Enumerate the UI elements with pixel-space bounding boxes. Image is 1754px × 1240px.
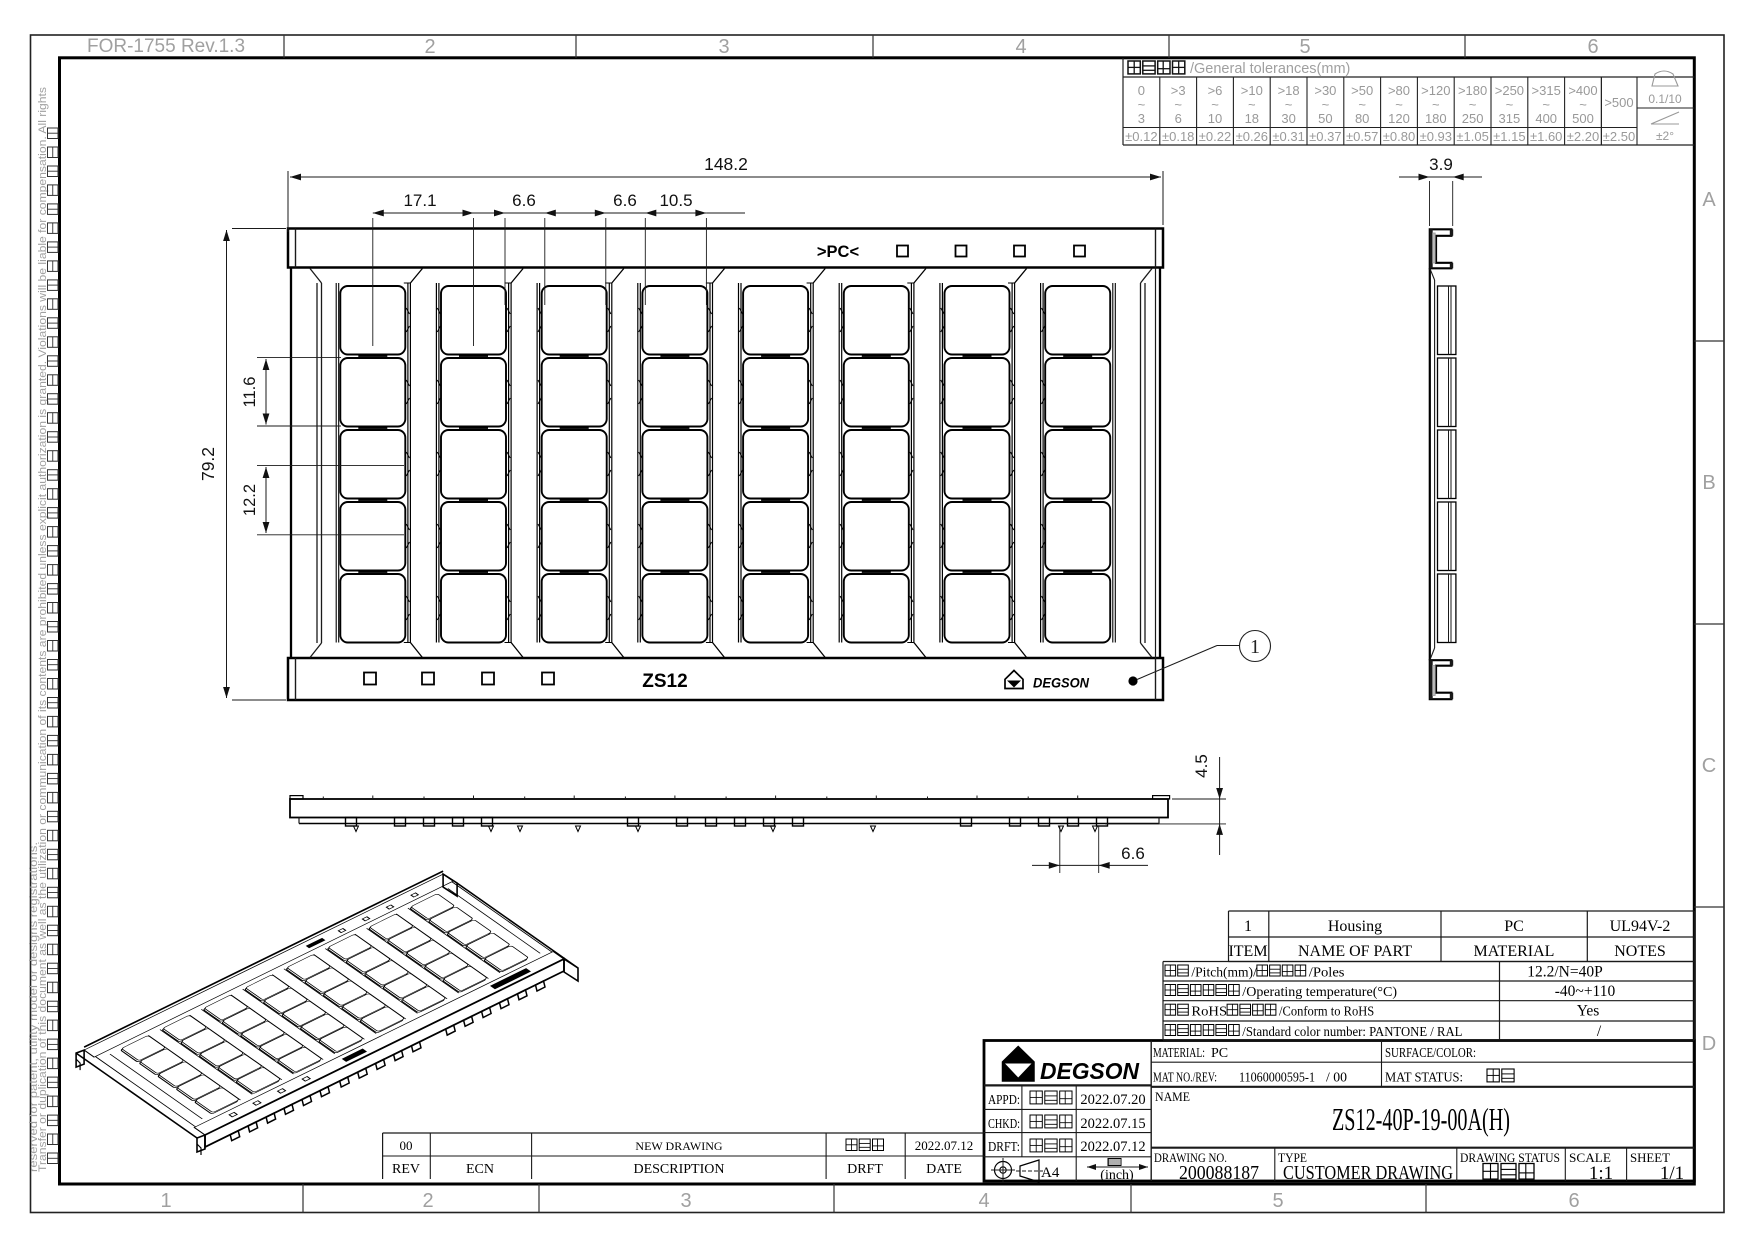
svg-text:4: 4 bbox=[978, 1190, 989, 1212]
svg-text:3: 3 bbox=[718, 36, 729, 58]
svg-text:MATERIAL: MATERIAL bbox=[1474, 943, 1555, 960]
svg-text:30: 30 bbox=[1281, 111, 1295, 126]
svg-text:200088187: 200088187 bbox=[1179, 1162, 1259, 1184]
svg-text:MAT STATUS:: MAT STATUS: bbox=[1385, 1071, 1463, 1086]
svg-text:±0.57: ±0.57 bbox=[1346, 129, 1378, 144]
svg-text:2: 2 bbox=[422, 1190, 433, 1212]
svg-text:12.2/N=40P: 12.2/N=40P bbox=[1527, 964, 1603, 981]
svg-text:MAT NO./REV:: MAT NO./REV: bbox=[1153, 1071, 1217, 1086]
svg-text:1: 1 bbox=[1250, 636, 1260, 658]
svg-text:-40~+110: -40~+110 bbox=[1555, 983, 1616, 1000]
svg-text:6: 6 bbox=[1175, 111, 1182, 126]
svg-text:~: ~ bbox=[1174, 97, 1182, 112]
svg-text:CHKD:: CHKD: bbox=[988, 1117, 1020, 1132]
svg-text:~: ~ bbox=[1579, 97, 1587, 112]
svg-text:D: D bbox=[1702, 1033, 1716, 1055]
svg-text:>3: >3 bbox=[1171, 83, 1186, 98]
svg-text:/Operating temperature(°C): /Operating temperature(°C) bbox=[1242, 985, 1397, 1000]
svg-text:NAME OF PART: NAME OF PART bbox=[1298, 943, 1412, 960]
svg-text:±0.37: ±0.37 bbox=[1309, 129, 1341, 144]
svg-text:>10: >10 bbox=[1241, 83, 1263, 98]
svg-text:~: ~ bbox=[1358, 97, 1366, 112]
svg-text:±2°: ±2° bbox=[1656, 129, 1674, 143]
svg-text:120: 120 bbox=[1388, 111, 1410, 126]
svg-text:4.5: 4.5 bbox=[1192, 754, 1211, 778]
svg-text:±1.60: ±1.60 bbox=[1530, 129, 1562, 144]
svg-text:~: ~ bbox=[1138, 97, 1146, 112]
svg-text:~: ~ bbox=[1322, 97, 1330, 112]
svg-text:~: ~ bbox=[1542, 97, 1550, 112]
svg-text:~: ~ bbox=[1285, 97, 1293, 112]
svg-text:1/1: 1/1 bbox=[1660, 1163, 1684, 1184]
svg-text:reserved for patent, utility m: reserved for patent, utility model or de… bbox=[28, 842, 40, 1172]
svg-text:MATERIAL:: MATERIAL: bbox=[1153, 1046, 1205, 1061]
svg-text:>50: >50 bbox=[1351, 83, 1373, 98]
svg-text:Housing: Housing bbox=[1328, 918, 1382, 935]
svg-text:5: 5 bbox=[1272, 1190, 1283, 1212]
svg-text:Yes: Yes bbox=[1577, 1003, 1600, 1020]
svg-text:±1.05: ±1.05 bbox=[1456, 129, 1488, 144]
svg-text:DESCRIPTION: DESCRIPTION bbox=[633, 1162, 724, 1177]
svg-text:2022.07.15: 2022.07.15 bbox=[1080, 1116, 1145, 1132]
svg-text:3: 3 bbox=[1138, 111, 1145, 126]
svg-text:/General tolerances(mm): /General tolerances(mm) bbox=[1190, 61, 1350, 77]
svg-text:>500: >500 bbox=[1604, 95, 1633, 110]
svg-text:±2.50: ±2.50 bbox=[1603, 129, 1635, 144]
svg-text:>6: >6 bbox=[1208, 83, 1223, 98]
svg-text:UL94V-2: UL94V-2 bbox=[1610, 918, 1671, 935]
svg-text:~: ~ bbox=[1211, 97, 1219, 112]
svg-text:/Poles: /Poles bbox=[1309, 966, 1345, 981]
svg-text:>18: >18 bbox=[1278, 83, 1300, 98]
svg-text:±1.15: ±1.15 bbox=[1493, 129, 1525, 144]
svg-text:PC: PC bbox=[1211, 1046, 1228, 1061]
svg-text:±0.12: ±0.12 bbox=[1125, 129, 1157, 144]
svg-text:B: B bbox=[1702, 472, 1715, 494]
svg-text:315: 315 bbox=[1499, 111, 1521, 126]
svg-text:ZS12: ZS12 bbox=[642, 671, 687, 692]
svg-text:±2.20: ±2.20 bbox=[1567, 129, 1599, 144]
svg-text:~: ~ bbox=[1248, 97, 1256, 112]
svg-text:DRFT:: DRFT: bbox=[988, 1140, 1020, 1155]
svg-text:>250: >250 bbox=[1495, 83, 1524, 98]
svg-text:2022.07.12: 2022.07.12 bbox=[1080, 1139, 1145, 1155]
svg-text:/: / bbox=[1597, 1023, 1602, 1040]
svg-text:>PC<: >PC< bbox=[817, 243, 859, 261]
svg-text:0.1/10: 0.1/10 bbox=[1648, 92, 1682, 106]
svg-text:>80: >80 bbox=[1388, 83, 1410, 98]
svg-text:A: A bbox=[1702, 189, 1716, 211]
svg-text:>30: >30 bbox=[1314, 83, 1336, 98]
svg-text:6.6: 6.6 bbox=[1121, 844, 1145, 863]
svg-text:17.1: 17.1 bbox=[403, 191, 436, 210]
svg-text:APPD:: APPD: bbox=[988, 1093, 1020, 1108]
svg-text:ECN: ECN bbox=[466, 1162, 494, 1177]
svg-text:0: 0 bbox=[1138, 83, 1145, 98]
svg-text:±0.26: ±0.26 bbox=[1236, 129, 1268, 144]
svg-text:3.9: 3.9 bbox=[1429, 155, 1453, 174]
svg-text:250: 250 bbox=[1462, 111, 1484, 126]
svg-text:±0.22: ±0.22 bbox=[1199, 129, 1231, 144]
svg-text:/ 00: / 00 bbox=[1326, 1071, 1347, 1086]
svg-text:2022.07.12: 2022.07.12 bbox=[915, 1138, 974, 1153]
svg-text:/Pitch(mm)/: /Pitch(mm)/ bbox=[1191, 966, 1257, 981]
svg-text:1: 1 bbox=[160, 1190, 171, 1212]
svg-text:6: 6 bbox=[1587, 36, 1598, 58]
svg-text:DRAWING STATUS: DRAWING STATUS bbox=[1460, 1150, 1560, 1165]
svg-text:~: ~ bbox=[1469, 97, 1477, 112]
svg-text:/Standard color number: PANTON: /Standard color number: PANTONE / RAL bbox=[1242, 1025, 1462, 1040]
svg-text:>120: >120 bbox=[1421, 83, 1450, 98]
svg-text:(inch): (inch) bbox=[1100, 1168, 1134, 1183]
svg-text:SURFACE/COLOR:: SURFACE/COLOR: bbox=[1385, 1046, 1476, 1061]
svg-text:11.6: 11.6 bbox=[241, 377, 259, 408]
svg-text:180: 180 bbox=[1425, 111, 1447, 126]
svg-text:C: C bbox=[1702, 755, 1716, 777]
svg-text:ZS12-40P-19-00A(H): ZS12-40P-19-00A(H) bbox=[1332, 1101, 1510, 1137]
svg-text:NOTES: NOTES bbox=[1614, 943, 1666, 960]
svg-text:DEGSON: DEGSON bbox=[1033, 675, 1090, 691]
svg-text:PC: PC bbox=[1504, 918, 1524, 935]
svg-text:400: 400 bbox=[1535, 111, 1557, 126]
svg-text:80: 80 bbox=[1355, 111, 1369, 126]
svg-text:50: 50 bbox=[1318, 111, 1332, 126]
svg-text:>180: >180 bbox=[1458, 83, 1487, 98]
svg-text:RoHS: RoHS bbox=[1191, 1005, 1227, 1020]
svg-text:1:1: 1:1 bbox=[1589, 1163, 1613, 1184]
svg-text:REV: REV bbox=[392, 1162, 420, 1177]
svg-text:~: ~ bbox=[1432, 97, 1440, 112]
svg-text:±0.18: ±0.18 bbox=[1162, 129, 1194, 144]
svg-text:ITEM: ITEM bbox=[1228, 943, 1267, 960]
svg-text:1: 1 bbox=[1244, 918, 1252, 935]
svg-text:6.6: 6.6 bbox=[613, 191, 637, 210]
svg-text:2022.07.20: 2022.07.20 bbox=[1080, 1092, 1145, 1108]
svg-text:4: 4 bbox=[1015, 36, 1026, 58]
svg-text:/Conform to RoHS: /Conform to RoHS bbox=[1279, 1005, 1374, 1020]
svg-text:DRFT: DRFT bbox=[847, 1162, 883, 1177]
svg-text:10.5: 10.5 bbox=[659, 191, 692, 210]
svg-text:~: ~ bbox=[1506, 97, 1514, 112]
svg-text:>315: >315 bbox=[1532, 83, 1561, 98]
svg-text:00: 00 bbox=[400, 1138, 413, 1153]
svg-text:11060000595-1: 11060000595-1 bbox=[1239, 1071, 1315, 1086]
svg-text:FOR-1755 Rev.1.3: FOR-1755 Rev.1.3 bbox=[87, 36, 245, 57]
svg-text:18: 18 bbox=[1245, 111, 1259, 126]
svg-text:A4: A4 bbox=[1041, 1165, 1060, 1181]
svg-text:NEW DRAWING: NEW DRAWING bbox=[635, 1139, 722, 1153]
svg-text:NAME: NAME bbox=[1155, 1090, 1190, 1104]
svg-text:6: 6 bbox=[1568, 1190, 1579, 1212]
svg-text:±0.80: ±0.80 bbox=[1383, 129, 1415, 144]
svg-text:5: 5 bbox=[1299, 36, 1310, 58]
svg-text:148.2: 148.2 bbox=[704, 154, 748, 174]
svg-text:79.2: 79.2 bbox=[198, 447, 218, 481]
svg-text:6.6: 6.6 bbox=[512, 191, 536, 210]
svg-text:±0.31: ±0.31 bbox=[1272, 129, 1304, 144]
svg-text:±0.93: ±0.93 bbox=[1420, 129, 1452, 144]
svg-text:3: 3 bbox=[680, 1190, 691, 1212]
svg-text:CUSTOMER DRAWING: CUSTOMER DRAWING bbox=[1283, 1162, 1453, 1184]
svg-text:~: ~ bbox=[1395, 97, 1403, 112]
svg-text:500: 500 bbox=[1572, 111, 1594, 126]
svg-text:>400: >400 bbox=[1568, 83, 1597, 98]
svg-text:2: 2 bbox=[424, 36, 435, 58]
svg-text:DATE: DATE bbox=[926, 1162, 962, 1177]
svg-text:DEGSON: DEGSON bbox=[1040, 1058, 1139, 1084]
svg-text:12.2: 12.2 bbox=[241, 484, 259, 516]
svg-text:10: 10 bbox=[1208, 111, 1222, 126]
